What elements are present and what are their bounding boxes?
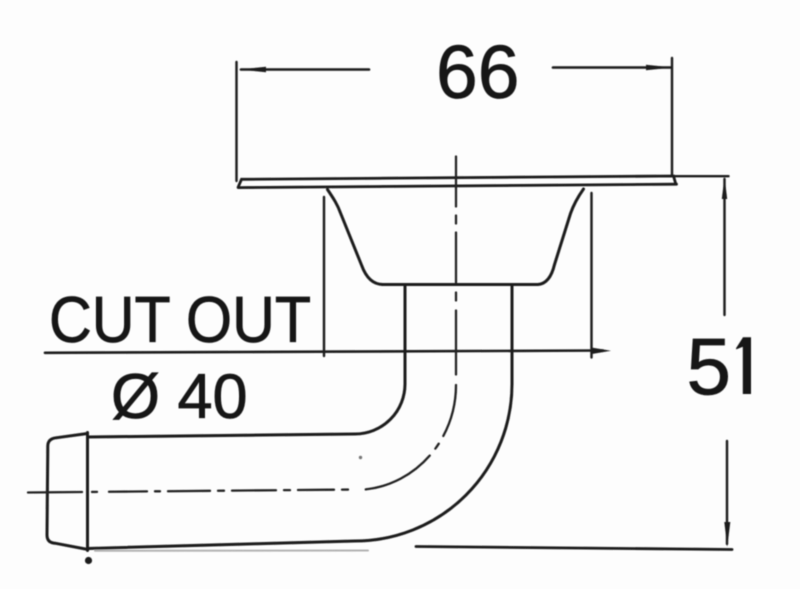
svg-text:Ø 40: Ø 40 (111, 362, 248, 432)
svg-text:66: 66 (436, 30, 519, 114)
svg-text:5: 5 (687, 322, 732, 411)
svg-text:CUT OUT: CUT OUT (49, 283, 311, 356)
